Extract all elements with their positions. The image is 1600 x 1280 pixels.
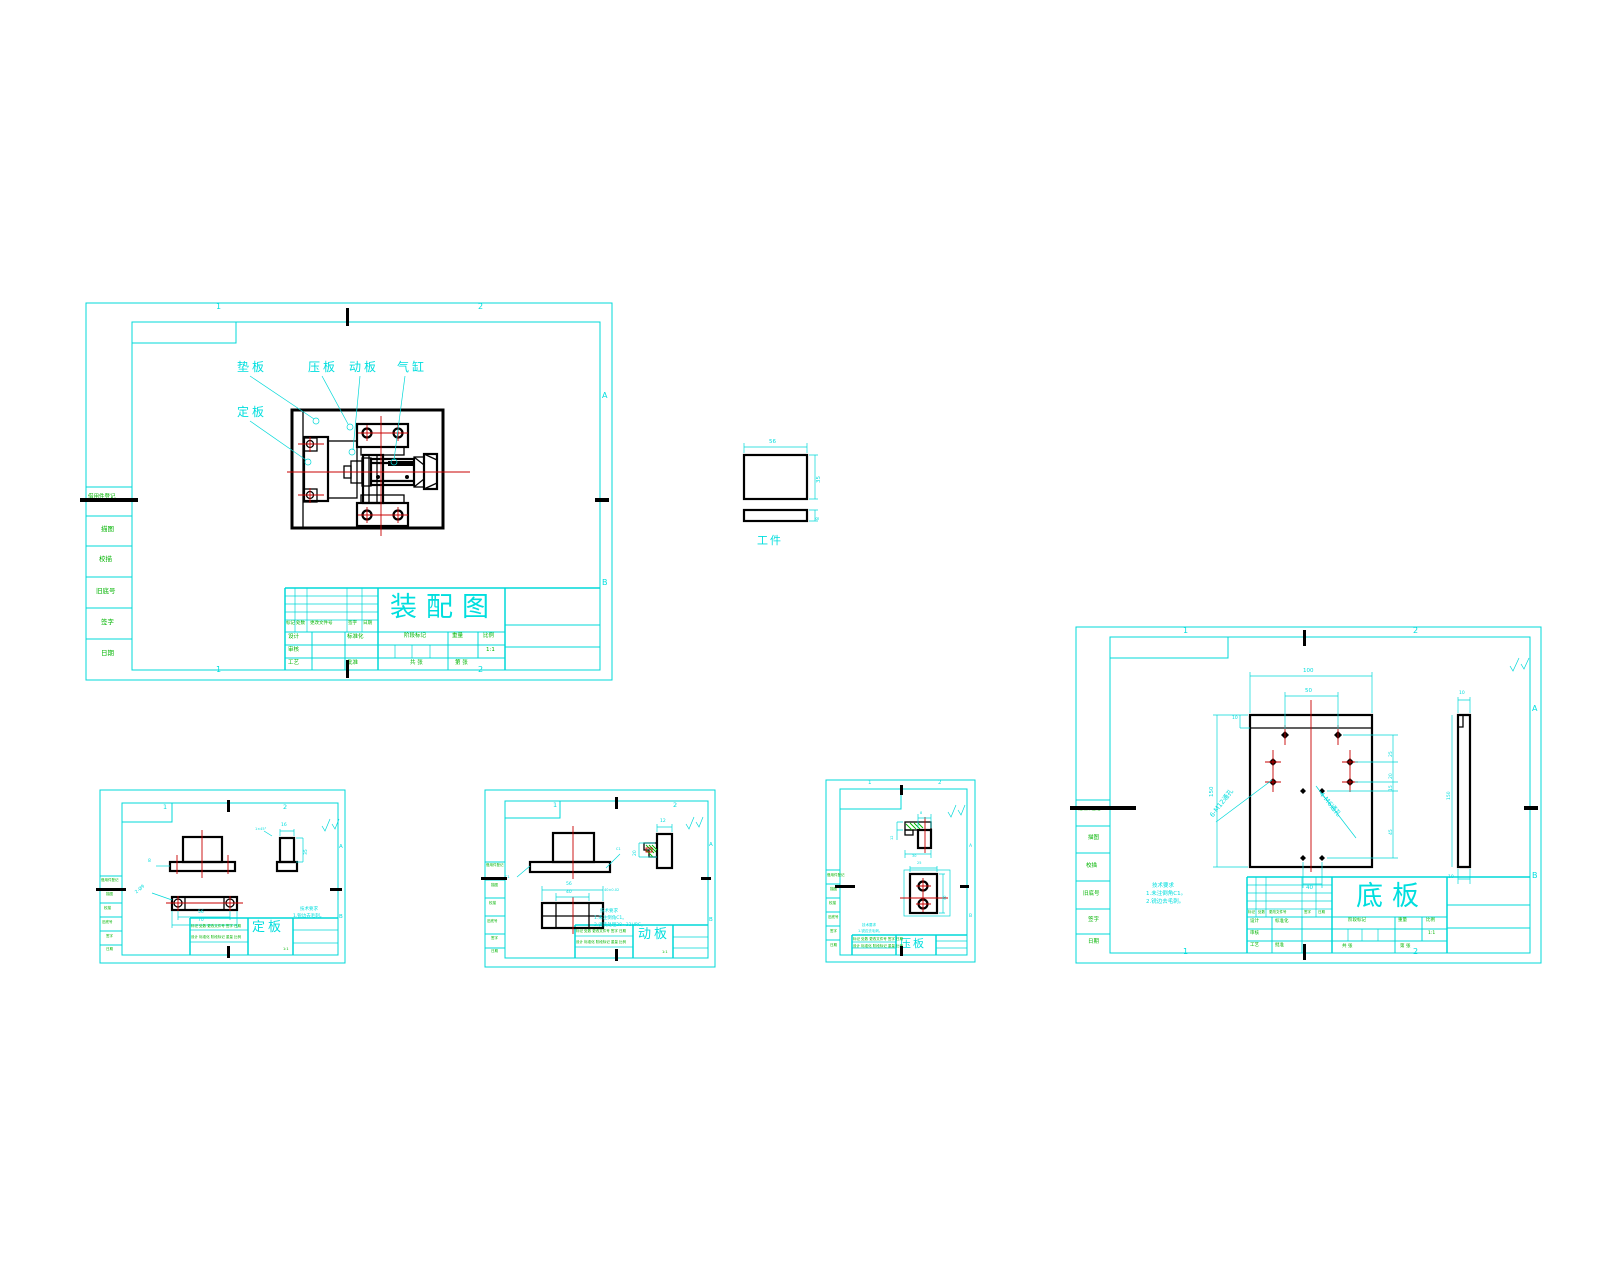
dim-label: 8 (148, 860, 151, 865)
centering-mark (900, 785, 903, 795)
dim-label: 45 (1390, 829, 1395, 835)
centering-mark (1303, 630, 1306, 646)
dim-label: 1×45° (255, 828, 266, 832)
dim-label: 150 (1448, 791, 1453, 800)
strip-label-trace: 描图 (491, 884, 498, 888)
centering-mark (835, 885, 855, 888)
centering-mark (227, 946, 230, 958)
sheet-assembly-geometry (292, 410, 443, 528)
note-line: 技术要求 (1152, 884, 1174, 890)
strip-label-borrow: 借用件登记 (101, 879, 119, 883)
callout-dongban: 动板 (349, 361, 379, 373)
centering-mark (1524, 806, 1538, 810)
tb-mini-row: 设计 标准化 阶段标记 重量 比例 (853, 945, 903, 949)
dim-label: 50 (1305, 689, 1312, 695)
strip-label-trace: 描图 (106, 893, 113, 897)
tb-scale-value: 1:1 (486, 648, 495, 654)
tb-label-scale: 比例 (483, 634, 494, 640)
tb-label-stage: 阶段标记 (1348, 919, 1366, 924)
dim-label: 35 (817, 476, 823, 483)
note-line: 技术要求 (300, 908, 318, 913)
strip-label-proof: 校描 (104, 907, 111, 911)
dim-label: 20 (1390, 773, 1395, 779)
tb-label-date: 日期 (363, 622, 372, 627)
tb-label-design: 设计 (1250, 920, 1259, 925)
tb-label-qty: 处数 (1258, 911, 1265, 915)
tb-label-approve: 批准 (1275, 944, 1284, 949)
tb-label-mark: 标记 (286, 622, 295, 627)
zone-number: 2 (1413, 948, 1418, 956)
centering-mark (595, 498, 609, 502)
tb-label-sign: 签字 (1304, 911, 1311, 915)
note-line: 1.锐边去毛刺。 (858, 930, 882, 934)
strip-label-trace: 描图 (830, 888, 837, 892)
tb-label-mark: 标记 (1248, 911, 1255, 915)
tb-mini-row: 标记 处数 更改文件号 签字 日期 (576, 930, 626, 934)
dim-label: 25 (1390, 751, 1395, 757)
centering-mark (1303, 944, 1306, 960)
zone-letter: A (339, 845, 343, 851)
zone-letter: B (1532, 872, 1538, 880)
strip-label-sign: 签字 (101, 619, 114, 626)
zone-number: 1 (216, 303, 221, 311)
zone-letter: A (969, 845, 972, 850)
strip-label-date: 日期 (1088, 940, 1099, 946)
callout-yaban: 压板 (308, 361, 338, 373)
strip-label-borrow: 借用件登记 (486, 864, 504, 868)
tb-label-page: 第 张 (455, 661, 468, 667)
zone-number: 1 (1183, 627, 1188, 635)
tb-label-audit: 审核 (1250, 932, 1259, 937)
zone-letter: B (339, 915, 343, 921)
zone-number: 2 (1413, 627, 1418, 635)
dim-label: 150 (1210, 787, 1216, 798)
tb-label-scale: 比例 (1426, 919, 1435, 924)
strip-label-date: 日期 (491, 950, 498, 954)
workpiece-label: 工件 (757, 535, 783, 546)
zone-letter: B (969, 915, 972, 920)
strip-label-oldno: 旧底号 (102, 921, 113, 925)
strip-label-date: 日期 (106, 948, 113, 952)
sheet-baseplate-centerlines (1265, 700, 1358, 872)
strip-label-borrow: 借用件登记 (827, 874, 845, 878)
sheet-title-baseplate: 底板 (1356, 883, 1428, 910)
zone-letter: A (1532, 705, 1537, 713)
zone-number: 2 (283, 804, 287, 811)
dim-label: 70 (198, 919, 204, 924)
zone-number: 2 (673, 802, 677, 809)
dim-label: 40 (944, 896, 948, 900)
strip-label-proof: 校描 (99, 556, 112, 563)
tb-mini-row: 设计 标准化 阶段标记 重量 比例 (191, 936, 241, 940)
sheet-baseplate-dims (1213, 672, 1470, 888)
sheet-yaban-centerlines (900, 817, 948, 912)
zone-number: 2 (938, 781, 942, 787)
centering-mark (900, 946, 903, 956)
dim-label: 8 (920, 812, 922, 816)
centering-mark (227, 800, 230, 812)
zone-number: 2 (478, 666, 483, 674)
dim-label: 16 (281, 824, 287, 829)
note-line: 2.锐边去毛刺。 (1146, 900, 1184, 906)
zone-letter: B (602, 579, 608, 587)
tb-label-craft: 工艺 (1250, 944, 1259, 949)
sheet-title-dingban: 定板 (252, 921, 284, 934)
sheet-dingban-geometry (170, 837, 297, 910)
note-line: 技术要求 (862, 924, 876, 928)
tb-label-design: 设计 (288, 635, 299, 641)
strip-label-date: 日期 (101, 650, 114, 657)
tb-scale-value: 1:1 (1428, 932, 1435, 937)
zone-number: 1 (216, 666, 221, 674)
zone-letter: B (709, 918, 713, 924)
strip-label-oldno: 旧底号 (487, 920, 498, 924)
dim-label: 56 (769, 440, 776, 446)
tb-label-qty: 处数 (296, 622, 305, 627)
dim-label: 15 (1390, 785, 1395, 791)
strip-label-trace: 描图 (101, 526, 114, 533)
sheet-title-yaban: 压板 (900, 938, 926, 949)
zone-letter: A (709, 843, 713, 849)
sheet-title-assembly: 装配图 (390, 594, 498, 621)
tb-label-stage: 阶段标记 (404, 634, 426, 640)
centering-mark (346, 660, 349, 678)
zone-number: 1 (553, 802, 557, 809)
strip-label-trace: 描图 (1088, 836, 1099, 842)
centering-mark (96, 888, 126, 891)
tb-label-weight: 重量 (452, 634, 463, 640)
tb-label-weight: 重量 (1398, 919, 1407, 924)
centering-mark (80, 498, 138, 502)
dim-label: 8 (817, 517, 822, 520)
centering-mark (346, 308, 349, 326)
tb-scale-value: 1:1 (662, 951, 668, 955)
tb-label-date: 日期 (1318, 911, 1325, 915)
tb-label-sign: 签字 (348, 622, 357, 627)
dim-label: 10 (1232, 717, 1238, 722)
zone-letter: A (602, 392, 607, 400)
dim-label: 12 (891, 836, 895, 840)
strip-label-proof: 校描 (489, 902, 496, 906)
strip-label-sign: 签字 (830, 930, 837, 934)
tb-label-page: 第 张 (1400, 945, 1410, 950)
dim-label: 10 (1448, 876, 1454, 881)
dim-label: 56 (566, 883, 572, 888)
note-line: 技术要求 (600, 910, 618, 915)
dim-label: 25 (917, 862, 921, 866)
cad-linework-svg (0, 0, 1600, 1280)
strip-label-sign: 签字 (1088, 918, 1099, 924)
note-line: 1.未注倒角C1。 (594, 917, 627, 922)
dim-label: 12 (660, 820, 666, 825)
centering-mark (701, 877, 711, 880)
tb-scale-value: 1:1 (283, 948, 289, 952)
tb-label-craft: 工艺 (288, 661, 299, 667)
callout-qigang: 气缸 (397, 361, 427, 373)
dim-label: 100 (1303, 669, 1314, 675)
note-line: 1.锐边去毛刺。 (293, 915, 324, 920)
callout-dianban: 垫板 (237, 361, 267, 373)
zone-number: 1 (163, 804, 167, 811)
tb-mini-row: 设计 标准化 阶段标记 重量 比例 (576, 941, 626, 945)
strip-label-sign: 签字 (491, 937, 498, 941)
centering-mark (1070, 806, 1136, 810)
dim-label: 40 (566, 891, 572, 896)
tb-mini-row: 标记 处数 更改文件号 签字 日期 (853, 938, 903, 942)
sheet-title-dongban: 动板 (638, 928, 670, 941)
dim-label: C1 (616, 848, 621, 852)
tb-label-doc: 更改文件号 (1269, 911, 1287, 915)
tb-label-total: 共 张 (1342, 945, 1352, 950)
strip-label-oldno: 旧底号 (1083, 892, 1100, 898)
workpiece-detail (744, 443, 818, 521)
dim-label: 40±0.02 (604, 889, 619, 893)
cad-drawing-canvas: 1 2 1 2 A B 借用件登记 描图 校描 旧底号 签字 日期 垫板 压板 … (0, 0, 1600, 1280)
strip-label-sign: 签字 (106, 935, 113, 939)
dim-label: 56 (198, 911, 204, 916)
strip-label-oldno: 旧底号 (96, 588, 116, 595)
strip-label-date: 日期 (830, 944, 837, 948)
centering-mark (615, 797, 618, 809)
dim-label: 30 (912, 855, 916, 859)
zone-number: 1 (1183, 948, 1188, 956)
tb-label-total: 共 张 (410, 661, 423, 667)
tb-mini-row: 标记 处数 更改文件号 签字 日期 (191, 925, 241, 929)
dim-label: 40 (1306, 886, 1313, 892)
centering-mark (481, 877, 507, 880)
sheet-yaban-frame (826, 780, 975, 962)
strip-label-proof: 校描 (829, 902, 836, 906)
dim-label: 35 (305, 849, 310, 855)
centering-mark (960, 885, 969, 888)
callout-dingban: 定板 (237, 406, 267, 418)
tb-label-std: 标准化 (347, 635, 364, 641)
centering-mark (330, 888, 342, 891)
note-line: 1.未注倒角C1。 (1146, 892, 1186, 898)
strip-label-proof: 校描 (1086, 864, 1097, 870)
tb-label-std: 标准化 (1275, 920, 1289, 925)
zone-number: 1 (868, 781, 872, 787)
strip-label-oldno: 旧底号 (828, 916, 839, 920)
dim-label: 20 (634, 850, 639, 856)
dim-label: 10 (1459, 692, 1465, 697)
zone-number: 2 (478, 303, 483, 311)
tb-label-audit: 审核 (288, 648, 299, 654)
tb-label-doc: 更改文件号 (310, 622, 333, 627)
centering-mark (615, 949, 618, 961)
